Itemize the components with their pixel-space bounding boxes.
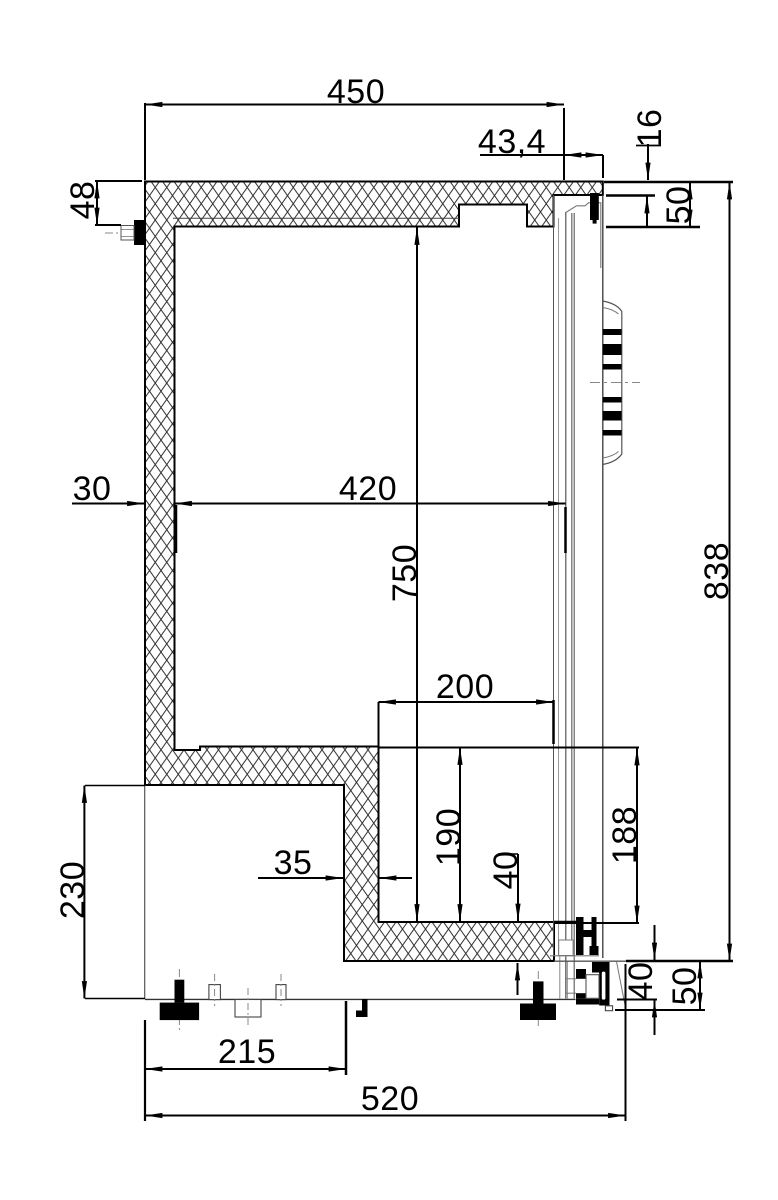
svg-text:16: 16 — [631, 109, 669, 148]
svg-text:450: 450 — [327, 73, 385, 111]
svg-text:200: 200 — [436, 668, 494, 706]
svg-text:520: 520 — [361, 1080, 419, 1118]
svg-text:40: 40 — [487, 851, 525, 890]
svg-text:50: 50 — [666, 967, 704, 1006]
svg-text:420: 420 — [339, 470, 397, 508]
svg-text:30: 30 — [73, 470, 112, 508]
svg-text:215: 215 — [218, 1033, 276, 1071]
svg-text:40: 40 — [622, 962, 660, 1001]
svg-text:43,4: 43,4 — [478, 123, 546, 161]
svg-text:35: 35 — [274, 844, 313, 882]
svg-text:838: 838 — [698, 542, 736, 600]
svg-text:188: 188 — [606, 806, 644, 864]
svg-text:50: 50 — [660, 186, 698, 225]
svg-text:48: 48 — [64, 181, 102, 220]
svg-text:750: 750 — [386, 544, 424, 602]
svg-text:230: 230 — [54, 861, 92, 919]
svg-text:190: 190 — [430, 808, 468, 866]
